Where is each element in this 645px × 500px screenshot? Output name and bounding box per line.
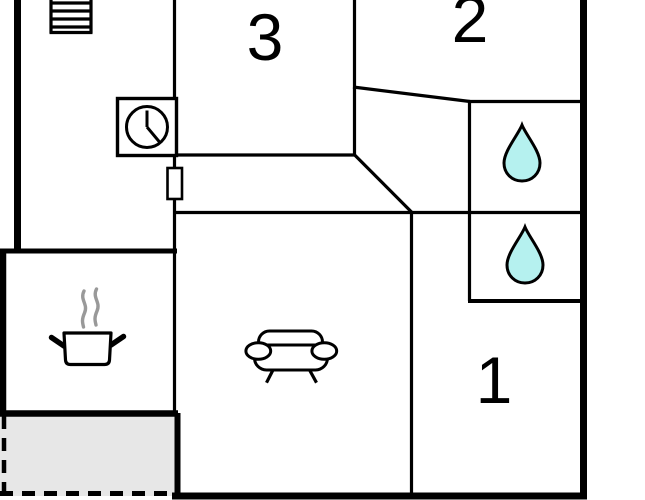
floor-plan-canvas: 3 2 1 [0,0,645,500]
room-1-label: 1 [476,343,513,417]
room-2-label: 2 [452,0,489,56]
room-3-label: 3 [247,0,284,74]
pot-body [64,333,111,365]
clock-icon [118,99,177,156]
sofa-armrest-left [246,343,271,360]
sofa-armrest-right [312,343,337,360]
door-icon [168,168,183,199]
terrace-area [0,415,175,497]
floor-plan: 3 2 1 [0,0,645,500]
terrace-floor [0,415,175,496]
